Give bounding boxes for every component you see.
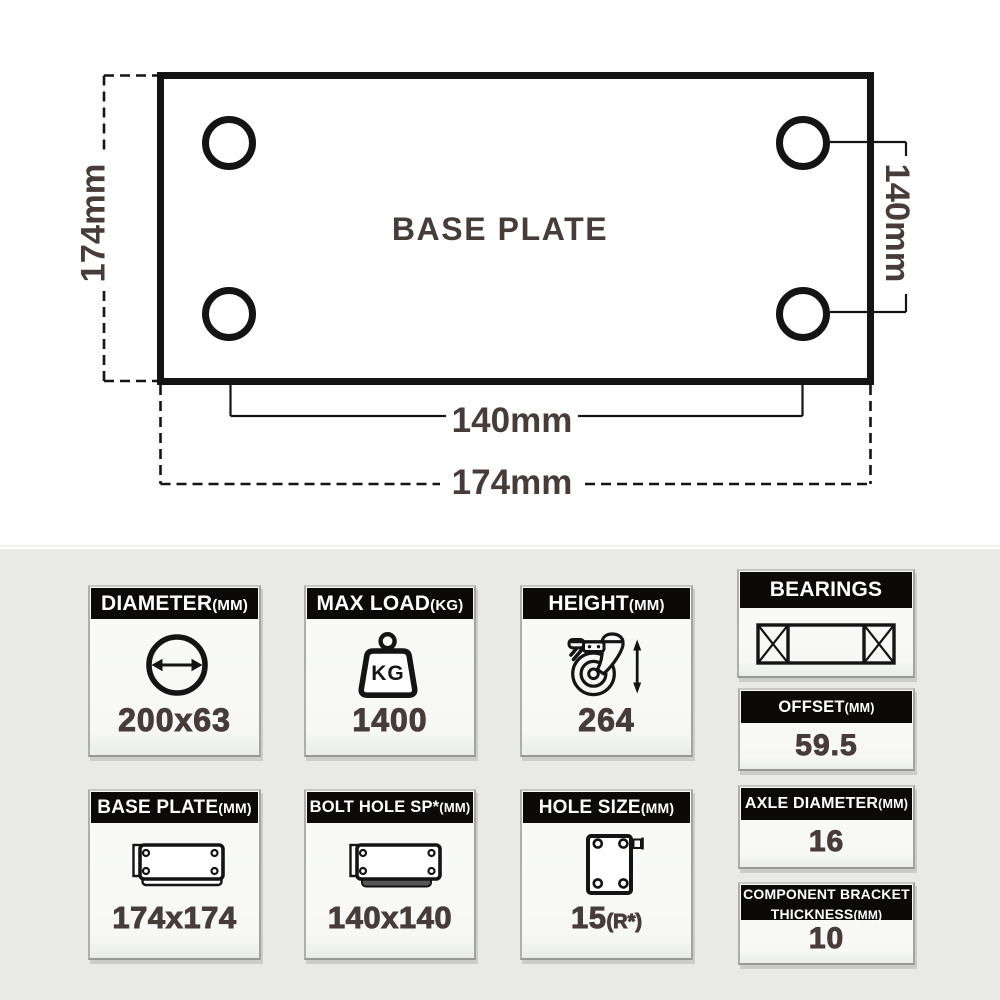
svg-text:174mm: 174mm (452, 463, 573, 502)
svg-text:KG: KG (371, 662, 405, 685)
svg-text:140mm: 140mm (452, 401, 573, 440)
svg-text:174mm: 174mm (75, 164, 113, 283)
svg-text:BASE PLATE: BASE PLATE (392, 211, 608, 247)
svg-text:140mm: 140mm (878, 164, 916, 283)
